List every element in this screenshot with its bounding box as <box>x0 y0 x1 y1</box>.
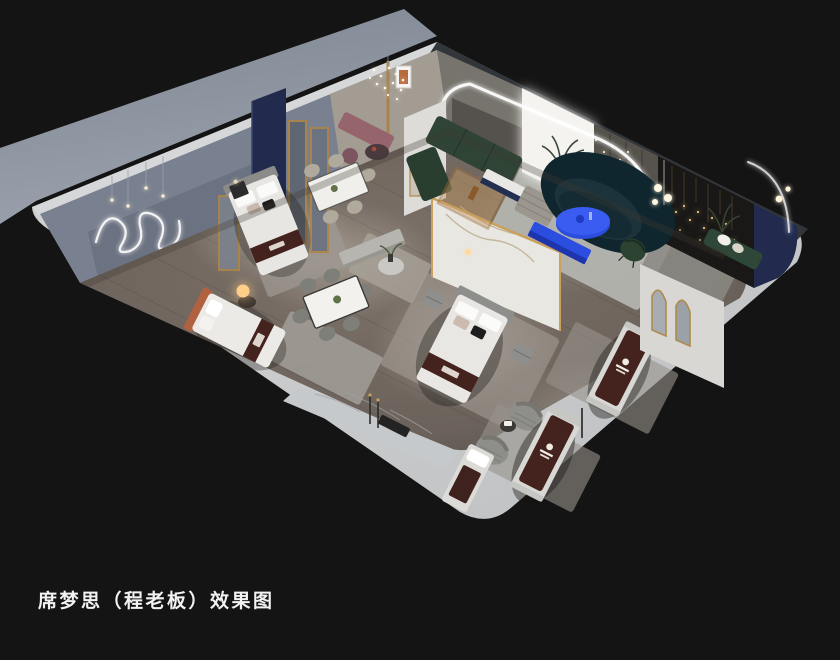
rendering-canvas: 席梦思（程老板）效果图 <box>0 0 840 660</box>
caption-title: 席梦思（程老板）效果图 <box>38 586 275 613</box>
wall-art-frame <box>396 66 411 88</box>
side-table-small <box>500 420 516 432</box>
showroom-illustration <box>0 0 840 660</box>
coffee-table-blue <box>556 207 610 239</box>
stool-plum <box>342 148 358 164</box>
